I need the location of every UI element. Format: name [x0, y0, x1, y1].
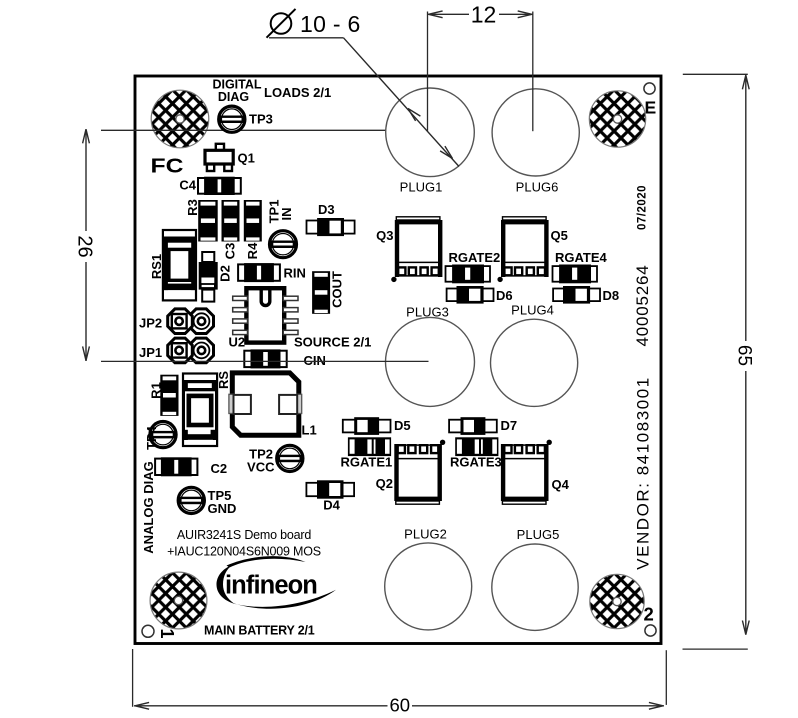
- svg-text:COUT: COUT: [330, 271, 345, 308]
- svg-text:TP4: TP4: [144, 425, 159, 450]
- svg-text:Q2: Q2: [376, 476, 393, 491]
- svg-text:60: 60: [390, 695, 411, 716]
- svg-text:DIAG: DIAG: [218, 90, 249, 104]
- svg-text:RGATE1: RGATE1: [341, 455, 393, 470]
- svg-text:R3: R3: [185, 199, 200, 216]
- svg-text:RS: RS: [216, 371, 231, 389]
- svg-text:JP1: JP1: [139, 345, 162, 360]
- svg-text:VENDOR: 841083001: VENDOR: 841083001: [633, 376, 652, 570]
- svg-text:Q5: Q5: [551, 228, 568, 243]
- svg-text:D7: D7: [501, 418, 518, 433]
- svg-text:D8: D8: [603, 288, 620, 303]
- svg-text:R4: R4: [245, 242, 260, 259]
- svg-text:ANALOG DIAG: ANALOG DIAG: [141, 461, 156, 553]
- svg-text:PLUG4: PLUG4: [511, 303, 554, 318]
- svg-text:R1: R1: [148, 382, 163, 399]
- svg-text:PLUG5: PLUG5: [517, 527, 560, 542]
- svg-text:FC: FC: [151, 156, 184, 178]
- svg-text:RGATE3: RGATE3: [450, 455, 502, 470]
- svg-text:40005264: 40005264: [633, 264, 652, 346]
- svg-text:E: E: [645, 98, 657, 118]
- svg-text:D6: D6: [496, 288, 513, 303]
- svg-text:VCC: VCC: [247, 460, 275, 475]
- svg-text:JP2: JP2: [139, 316, 162, 331]
- svg-text:C3: C3: [223, 243, 238, 260]
- svg-text:PLUG3: PLUG3: [406, 305, 449, 320]
- svg-text:D5: D5: [394, 418, 411, 433]
- svg-text:PLUG2: PLUG2: [404, 527, 447, 542]
- svg-text:L1: L1: [302, 423, 317, 438]
- svg-text:2: 2: [644, 604, 654, 625]
- svg-text:12: 12: [471, 1, 497, 27]
- svg-text:LOADS 2/1: LOADS 2/1: [264, 85, 331, 100]
- svg-text:SOURCE 2/1: SOURCE 2/1: [294, 335, 371, 350]
- svg-text:D3: D3: [318, 202, 335, 217]
- svg-text:C2: C2: [211, 461, 228, 476]
- svg-text:infineon: infineon: [225, 572, 317, 600]
- svg-text:Q4: Q4: [552, 477, 570, 492]
- svg-text:IN: IN: [279, 208, 294, 221]
- svg-text:Q3: Q3: [376, 228, 393, 243]
- svg-text:1: 1: [157, 628, 177, 638]
- svg-text:MAIN BATTERY 2/1: MAIN BATTERY 2/1: [204, 624, 315, 638]
- svg-text:D4: D4: [323, 498, 340, 513]
- svg-text:Q1: Q1: [238, 151, 255, 166]
- svg-text:+IAUC120N04S6N009 MOS: +IAUC120N04S6N009 MOS: [167, 545, 321, 559]
- svg-text:RIN: RIN: [284, 266, 306, 281]
- svg-text:C4: C4: [179, 178, 196, 193]
- svg-text:PLUG1: PLUG1: [400, 180, 443, 195]
- svg-text:RS1: RS1: [149, 254, 164, 279]
- svg-text:U2: U2: [229, 335, 246, 350]
- svg-text:TP3: TP3: [249, 112, 273, 127]
- svg-text:GND: GND: [208, 501, 237, 516]
- svg-text:PLUG6: PLUG6: [516, 180, 559, 195]
- svg-text:CIN: CIN: [304, 353, 326, 368]
- svg-text:RGATE4: RGATE4: [555, 250, 608, 265]
- svg-text:65: 65: [734, 345, 755, 366]
- svg-text:26: 26: [74, 235, 96, 257]
- svg-text:07/2020: 07/2020: [637, 185, 649, 230]
- svg-text:D2: D2: [218, 265, 233, 282]
- svg-text:10 - 6: 10 - 6: [300, 11, 361, 37]
- svg-text:AUIR3241S Demo board: AUIR3241S Demo board: [177, 528, 312, 542]
- svg-text:RGATE2: RGATE2: [449, 250, 501, 265]
